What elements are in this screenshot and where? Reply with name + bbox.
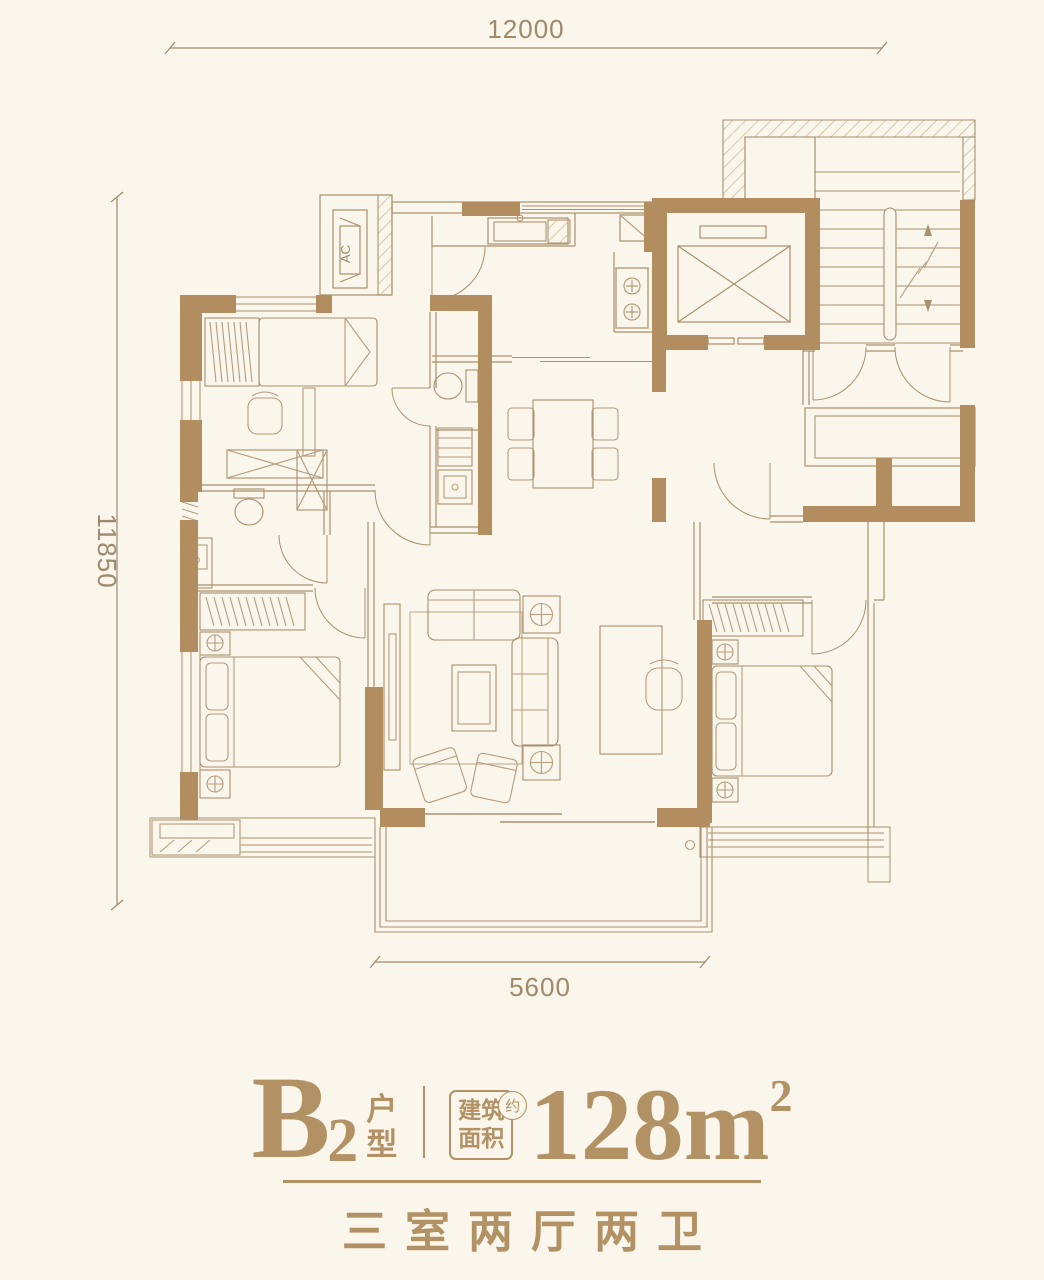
approx-badge: 约 [498,1091,527,1120]
title-block: B 2 户 型 建筑 面积 约 128m2 三室两厅两卫 [242,1072,802,1260]
windows-layer [150,297,890,882]
room-study [205,318,377,510]
unit-title-row: B 2 户 型 建筑 面积 约 128m2 [242,1072,802,1164]
area-label-bottom: 面积 [458,1125,504,1153]
area-superscript: 2 [770,1070,793,1121]
ac-label: AC [338,245,353,263]
layout-subtitle: 三室两厅两卫 [242,1195,802,1260]
dimension-bottom-label: 5600 [509,972,571,1002]
dimension-left-label: 11850 [92,513,122,588]
room-dining [508,400,618,488]
floorplan-drawing: AC [0,0,1044,1045]
balcony [375,827,712,932]
walls-layer [180,198,975,827]
unit-number: 2 [327,1119,358,1164]
area-value: 128m2 [529,1087,792,1164]
area-number: 128m [529,1068,769,1182]
floorplan-drawing-wrap: AC [0,0,1044,1050]
dimension-left: 11850 [92,192,123,910]
dimension-top: 12000 [165,14,887,54]
hallway [198,312,812,687]
area-label-top: 建筑 [458,1097,504,1125]
room-kitchen [392,202,652,362]
unit-type-char-top: 户 [366,1092,397,1127]
entry-foyer [770,345,975,833]
floorplan-page: { "dimensions": { "top": "12000", "left"… [0,0,1044,1280]
bedroom-right [703,600,874,827]
elevator [678,226,790,344]
room-wc [434,370,478,504]
vertical-divider [423,1086,425,1158]
unit-letter: B [251,1072,330,1164]
unit-type-label: 户 型 [366,1092,397,1162]
living-room [384,590,682,804]
dimension-top-label: 12000 [487,14,564,44]
bedroom-left [200,593,340,798]
unit-type-char-bottom: 型 [366,1127,397,1162]
dimension-bottom: 5600 [370,956,710,1002]
